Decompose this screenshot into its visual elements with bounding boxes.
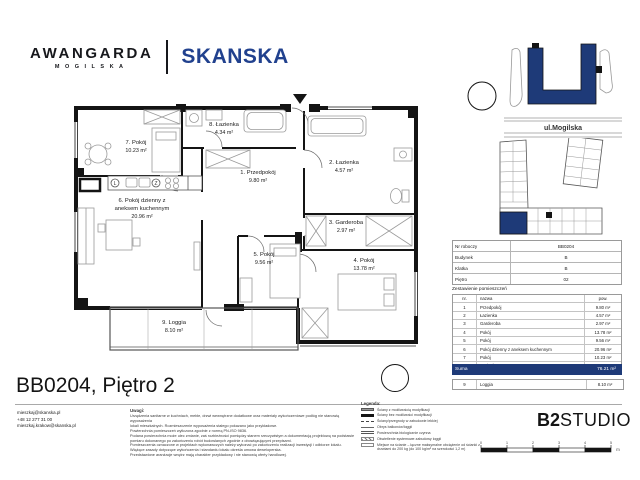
rooms-table-section: Zestawienie pomieszczeń nr. nazwa pow. 1… — [452, 287, 622, 371]
svg-text:20.96 m²: 20.96 m² — [131, 214, 152, 220]
awangarda-logo: AWANGARDA MOGILSKA — [30, 45, 153, 70]
notes-title: Uwagi: — [130, 408, 356, 413]
room-label-4: 4. Pokój — [354, 258, 375, 264]
flat-card-page: AWANGARDA MOGILSKA SKANSKA N ul.Mogilska — [0, 0, 640, 480]
rooms-table-header: nr. nazwa pow. — [453, 295, 621, 303]
svg-text:2.97 m²: 2.97 m² — [337, 228, 355, 234]
awangarda-logo-subtext: MOGILSKA — [30, 64, 153, 70]
key-plan-unit-highlight — [500, 212, 527, 234]
svg-text:4.57 m²: 4.57 m² — [335, 168, 353, 174]
table-row: 1Przedpokój9.80 m² — [453, 303, 621, 311]
site-map: ul.Mogilska — [502, 38, 624, 140]
legend-swatch-balcony-outline — [361, 427, 374, 428]
site-marker-1 — [532, 43, 539, 48]
legend-swatch-light-partition — [361, 421, 374, 422]
room-label-2: 2. Łazienka — [329, 160, 359, 166]
room-label-1: 1. Przedpokój — [240, 170, 275, 176]
svg-text:aneksem kuchennym: aneksem kuchennym — [115, 206, 170, 212]
svg-text:3: 3 — [558, 440, 561, 445]
room-label-3: 3. Garderoba — [329, 220, 364, 226]
svg-text:5: 5 — [610, 440, 613, 445]
table-row: 6Pokój dzienny z aneksem kuchennym20.96 … — [453, 345, 621, 353]
notes-block: Uwagi: Urządzenia sanitarne w kuchniach,… — [130, 408, 356, 458]
footer-divider — [15, 404, 622, 405]
page-title: BB0204, Piętro 2 — [16, 374, 175, 398]
contact-block: mieszkaj@skanska.pl +48 12 277 31 00 mie… — [17, 410, 76, 430]
svg-text:2: 2 — [532, 440, 535, 445]
entrance-arrow-icon — [293, 94, 307, 104]
studio-logo: B2STUDIO — [537, 410, 631, 431]
table-row: 2Łazienka4.57 m² — [453, 312, 621, 320]
rooms-table-title: Zestawienie pomieszczeń — [452, 287, 622, 292]
brand-divider — [166, 40, 168, 74]
legend-swatch-bio-area — [361, 431, 374, 434]
loggia-row-table: 9 Loggia 8.10 m² — [452, 379, 624, 390]
info-row: KlatkaB — [453, 263, 621, 274]
site-marker-2 — [596, 66, 602, 73]
plan-compass-icon: N — [374, 358, 416, 400]
floor-plan: L Z 7. Pokój 10.23 m² 8. Łazienka 4.34 m… — [52, 92, 432, 372]
room-label-8: 8. Łazienka — [209, 122, 239, 128]
scale-unit: m — [616, 447, 620, 452]
brand-header: AWANGARDA MOGILSKA SKANSKA — [30, 40, 289, 74]
legend-block: Legenda: Ściany z możliwością modyfikacj… — [361, 401, 483, 453]
contact-email-2: mieszkaj.krakow@skanska.pl — [17, 423, 76, 430]
svg-text:0: 0 — [480, 440, 483, 445]
room-label-6: 6. Pokój dzienny z — [118, 198, 165, 204]
site-compass-icon: N — [462, 76, 502, 116]
table-row: 4Pokój13.78 m² — [453, 329, 621, 337]
table-row: 5Pokój9.56 m² — [453, 337, 621, 345]
svg-text:8.10 m²: 8.10 m² — [165, 328, 183, 334]
awangarda-logo-text: AWANGARDA — [30, 45, 153, 62]
svg-text:13.78 m²: 13.78 m² — [353, 266, 374, 272]
dishwasher-icon: Z — [154, 181, 157, 187]
room-label-5: 5. Pokój — [254, 252, 275, 258]
room-label-7: 7. Pokój — [126, 140, 147, 146]
table-row: 3Garderoba2.97 m² — [453, 320, 621, 328]
info-row: Piętro02 — [453, 274, 621, 284]
street-label: ul.Mogilska — [544, 125, 582, 132]
svg-text:9.56 m²: 9.56 m² — [255, 260, 273, 266]
room-label-9: 9. Loggia — [162, 320, 187, 326]
svg-text:4.34 m²: 4.34 m² — [215, 130, 233, 136]
svg-text:4: 4 — [584, 440, 587, 445]
svg-text:10.23 m²: 10.23 m² — [125, 148, 146, 154]
legend-swatch-wall-load — [361, 443, 374, 447]
rooms-table: nr. nazwa pow. 1Przedpokój9.80 m² 2Łazie… — [452, 294, 622, 371]
site-neighbour-west — [510, 48, 522, 106]
scale-bar: 0 1 2 3 4 5 m — [477, 440, 625, 456]
info-row: Nr roboczyBB0204 — [453, 241, 621, 252]
svg-text:9.80 m²: 9.80 m² — [249, 178, 267, 184]
unit-info-table: Nr roboczyBB0204 BudynekB KlatkaB Piętro… — [452, 240, 622, 285]
site-building-footprint — [528, 44, 596, 104]
installation-shaft — [80, 179, 100, 191]
key-plan — [486, 138, 612, 238]
skanska-logo: SKANSKA — [181, 45, 288, 69]
legend-swatch-loggia-system — [361, 437, 374, 441]
legend-swatch-fixed-wall — [361, 414, 374, 418]
sum-bar: Suma 76.21 m² — [452, 364, 622, 375]
legend-title: Legenda: — [361, 401, 483, 406]
fridge-icon: L — [114, 181, 117, 187]
table-row: 9 Loggia 8.10 m² — [453, 380, 623, 389]
legend-swatch-modifiable-wall — [361, 408, 374, 412]
info-row: BudynekB — [453, 252, 621, 263]
table-row: 7Pokój10.23 m² — [453, 354, 621, 362]
svg-text:1: 1 — [506, 440, 509, 445]
